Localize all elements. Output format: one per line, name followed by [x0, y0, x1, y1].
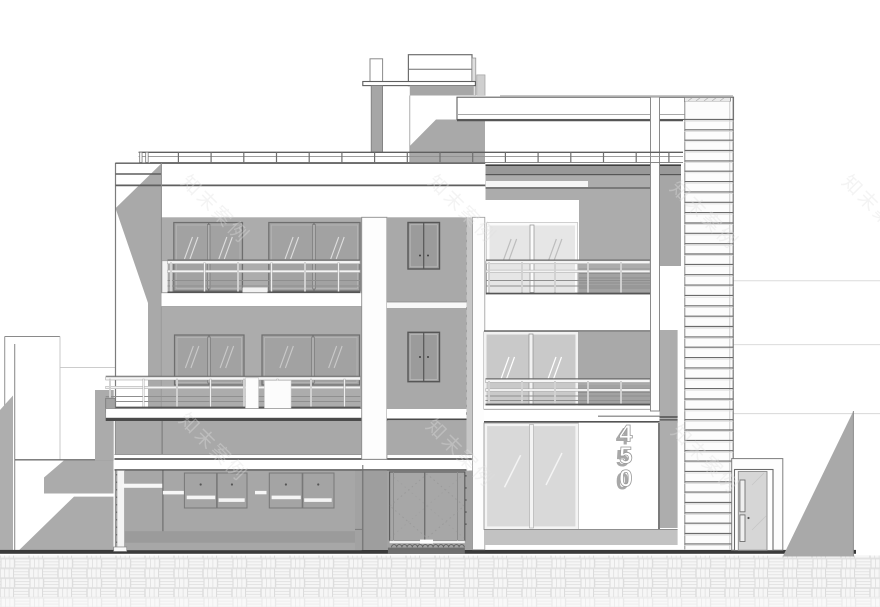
svg-text:0: 0	[619, 466, 632, 493]
